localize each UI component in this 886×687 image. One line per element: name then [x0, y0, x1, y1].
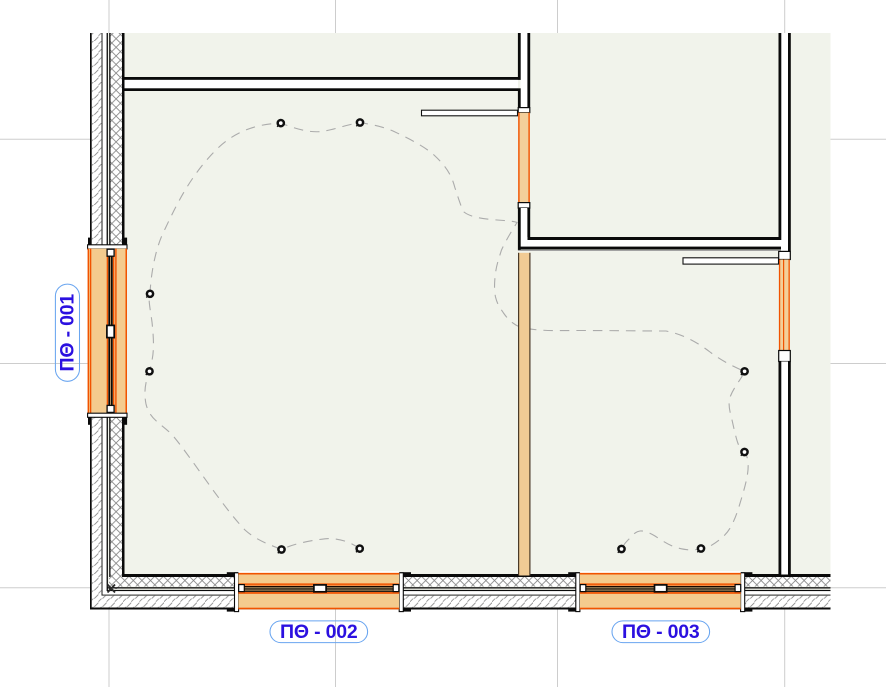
svg-text:ΠΘ - 002: ΠΘ - 002 — [280, 621, 358, 643]
svg-text:ΠΘ - 003: ΠΘ - 003 — [622, 621, 700, 643]
svg-text:ΠΘ - 001: ΠΘ - 001 — [57, 294, 79, 372]
